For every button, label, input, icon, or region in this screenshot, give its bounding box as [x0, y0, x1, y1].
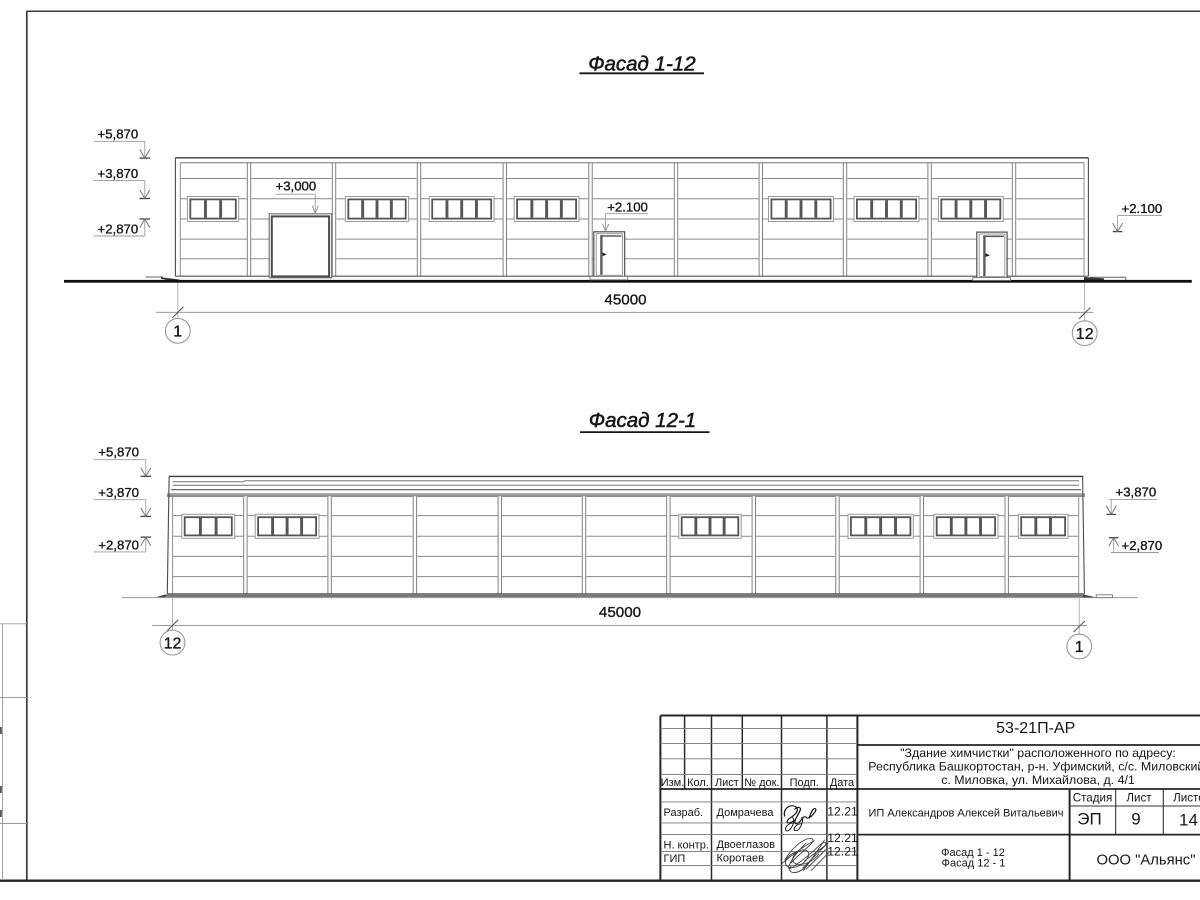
svg-text:Н. контр.: Н. контр.	[664, 839, 709, 851]
svg-text:+2.100: +2.100	[1122, 201, 1163, 216]
svg-text:12: 12	[1076, 326, 1094, 343]
svg-text:Домрачева: Домрачева	[717, 807, 775, 819]
svg-text:+2,870: +2,870	[98, 221, 139, 236]
svg-text:+3,870: +3,870	[1116, 485, 1157, 500]
svg-text:Фасад 1-12: Фасад 1-12	[588, 52, 696, 75]
svg-text:Листов: Листов	[1173, 792, 1200, 805]
svg-text:ИП Александров Алексей Виталье: ИП Александров Алексей Витальевич	[868, 808, 1063, 820]
svg-text:12: 12	[164, 635, 182, 652]
svg-text:"Здание химчистки" расположенн: "Здание химчистки" расположенного по адр…	[900, 746, 1176, 760]
svg-text:1: 1	[1075, 639, 1084, 656]
svg-text:Дата: Дата	[830, 777, 855, 789]
svg-text:ЭП: ЭП	[1077, 810, 1101, 829]
svg-text:+2.100: +2.100	[607, 200, 648, 215]
svg-text:12.21: 12.21	[827, 845, 858, 859]
svg-text:Двоеглазов: Двоеглазов	[717, 839, 776, 851]
svg-text:45000: 45000	[604, 292, 646, 309]
svg-text:53-21П-АР: 53-21П-АР	[996, 720, 1075, 737]
svg-text:Кол.: Кол.	[687, 777, 709, 789]
svg-text:9: 9	[1131, 810, 1140, 829]
svg-text:12.21: 12.21	[827, 804, 858, 818]
svg-text:+3,870: +3,870	[98, 166, 139, 181]
svg-text:Фасад 12 - 1: Фасад 12 - 1	[942, 857, 1006, 869]
svg-text:Лист: Лист	[1126, 792, 1152, 805]
svg-text:Разраб.: Разраб.	[664, 807, 704, 819]
svg-text:+5,870: +5,870	[98, 445, 139, 460]
svg-text:Республика Башкортостан, р-н.: Республика Башкортостан, р-н. Уфимский, …	[868, 760, 1200, 774]
svg-text:1: 1	[173, 323, 182, 340]
svg-text:Изм.: Изм.	[661, 777, 685, 789]
svg-text:+2,870: +2,870	[1122, 538, 1163, 553]
svg-text:12.21: 12.21	[827, 831, 858, 845]
svg-text:Подп.: Подп.	[790, 777, 819, 789]
svg-text:14: 14	[1179, 811, 1198, 830]
svg-text:+3,000: +3,000	[276, 179, 317, 194]
svg-text:№ док.: № док.	[744, 777, 779, 789]
svg-text:ГИП: ГИП	[664, 853, 686, 865]
svg-text:с. Миловка, ул. Михайлова, д.: с. Миловка, ул. Михайлова, д. 4/1	[941, 773, 1135, 787]
svg-text:+2,870: +2,870	[98, 537, 139, 552]
svg-text:Стадия: Стадия	[1073, 792, 1113, 805]
svg-text:Фасад 12-1: Фасад 12-1	[589, 409, 696, 432]
svg-text:Коротаев: Коротаев	[717, 853, 765, 865]
svg-text:ООО "Альянс": ООО "Альянс"	[1097, 853, 1196, 869]
svg-text:45000: 45000	[599, 604, 641, 621]
svg-text:+5,870: +5,870	[98, 127, 139, 142]
svg-text:+3,870: +3,870	[98, 485, 139, 500]
svg-text:Лист: Лист	[715, 777, 739, 789]
